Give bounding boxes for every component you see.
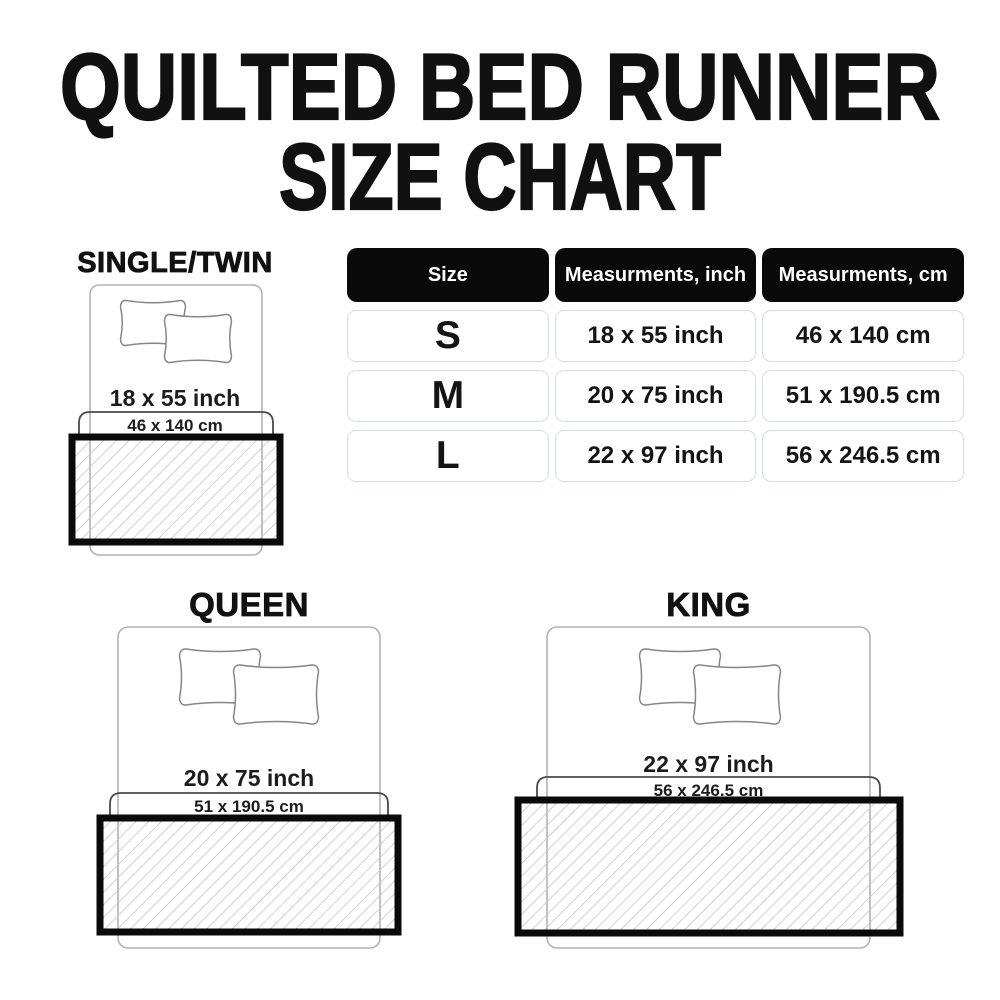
table-cell-inch-s: 18 x 55 inch [555,310,757,362]
page-title-line-2: SIZE CHART [279,124,721,229]
pillow-icon [694,665,781,724]
table-cell-inch-m: 20 x 75 inch [555,370,757,422]
size-table: Size Measurments, inch Measurments, cm S… [347,248,964,482]
inch-dimension-label-single-twin: 18 x 55 inch [75,385,275,412]
table-cell-inch-l: 22 x 97 inch [555,430,757,482]
pillow-icon [165,314,232,362]
table-cell-size-m: M [347,370,549,422]
table-cell-cm-l: 56 x 246.5 cm [762,430,964,482]
size-chart-infographic: QUILTED BED RUNNER SIZE CHART Size Measu… [0,0,1000,1000]
table-header-cm: Measurments, cm [762,248,964,302]
inch-dimension-label-queen: 20 x 75 inch [120,765,378,792]
bed-runner-swatch [518,800,900,933]
diagram-title-king: KING [547,586,870,624]
table-cell-size-l: L [347,430,549,482]
cm-dimension-label-queen: 51 x 190.5 cm [120,797,378,817]
pillow-icon [234,665,319,724]
cm-dimension-label-king: 56 x 246.5 cm [547,781,870,801]
bed-runner-swatch [72,437,280,542]
table-header-size: Size [347,248,549,302]
diagram-title-queen: QUEEN [118,586,380,624]
page-title: QUILTED BED RUNNER SIZE CHART [0,0,1000,230]
diagram-title-single-twin: SINGLE/TWIN [60,247,290,280]
table-cell-cm-m: 51 x 190.5 cm [762,370,964,422]
table-header-inch: Measurments, inch [555,248,757,302]
cm-dimension-label-single-twin: 46 x 140 cm [75,416,275,436]
table-cell-size-s: S [347,310,549,362]
inch-dimension-label-king: 22 x 97 inch [547,751,870,778]
bed-runner-swatch [100,818,398,932]
table-cell-cm-s: 46 x 140 cm [762,310,964,362]
